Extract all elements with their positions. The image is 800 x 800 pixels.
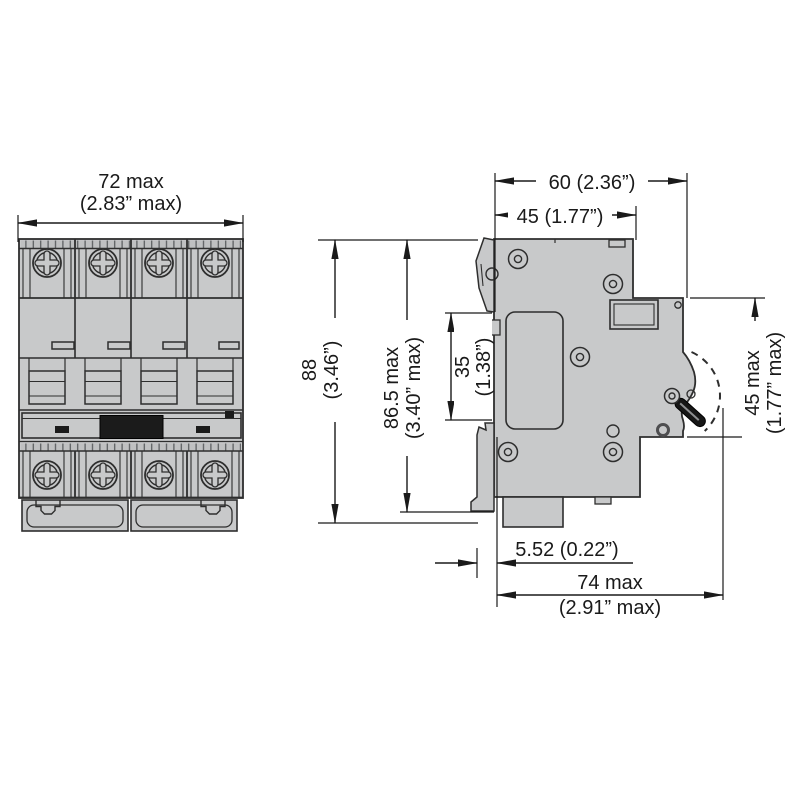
dim-label-recess-in: (1.38”) — [473, 338, 495, 397]
technical-drawing: 72 max (2.83” max) — [0, 0, 800, 800]
front-slot-left — [55, 426, 69, 433]
dim-label-width-in: (2.83” max) — [80, 193, 182, 215]
dim-label-recess-mm: 35 — [452, 356, 474, 378]
toggle-handle-front — [100, 416, 163, 439]
dim-recess-35: 35 (1.38”) — [445, 313, 495, 420]
canvas: 72 max (2.83” max) — [0, 0, 800, 800]
dim-width-72: 72 max (2.83” max) — [18, 170, 243, 242]
dim-label-depthmax-in: (2.91” max) — [559, 597, 661, 619]
side-view: 60 (2.36”) 45 (1.77”) 88 (3.46”) 86.5 ma… — [299, 170, 786, 619]
dim-label-width-mm: 72 max — [98, 171, 164, 193]
dim-label-body-depth: 45 (1.77”) — [517, 206, 604, 228]
dim-label-front-mm: 45 max — [742, 350, 764, 416]
dim-label-heightmax-in: (3.40” max) — [403, 337, 425, 439]
terminal-shield — [503, 497, 563, 527]
handle-pivot — [665, 389, 680, 404]
side-body — [471, 238, 720, 527]
din-claw-top — [476, 238, 494, 312]
dim-depth-45: 45 (1.77”) — [495, 204, 636, 240]
dim-label-depthmax-mm: 74 max — [577, 572, 643, 594]
dim-label-heightmax-mm: 86.5 max — [381, 347, 403, 429]
front-body — [19, 239, 243, 531]
din-claw-bottom — [471, 423, 494, 511]
front-clip-detail — [225, 411, 234, 418]
dim-label-offset: 5.52 (0.22”) — [515, 539, 618, 561]
dim-label-height-mm: 88 — [299, 359, 321, 381]
dim-label-depth-total: 60 (2.36”) — [549, 172, 636, 194]
dim-label-height-in: (3.46”) — [321, 341, 343, 400]
front-feet — [22, 500, 237, 531]
front-view: 72 max (2.83” max) — [18, 170, 243, 531]
front-slot-right — [196, 426, 210, 433]
dim-label-front-in: (1.77” max) — [764, 332, 786, 434]
